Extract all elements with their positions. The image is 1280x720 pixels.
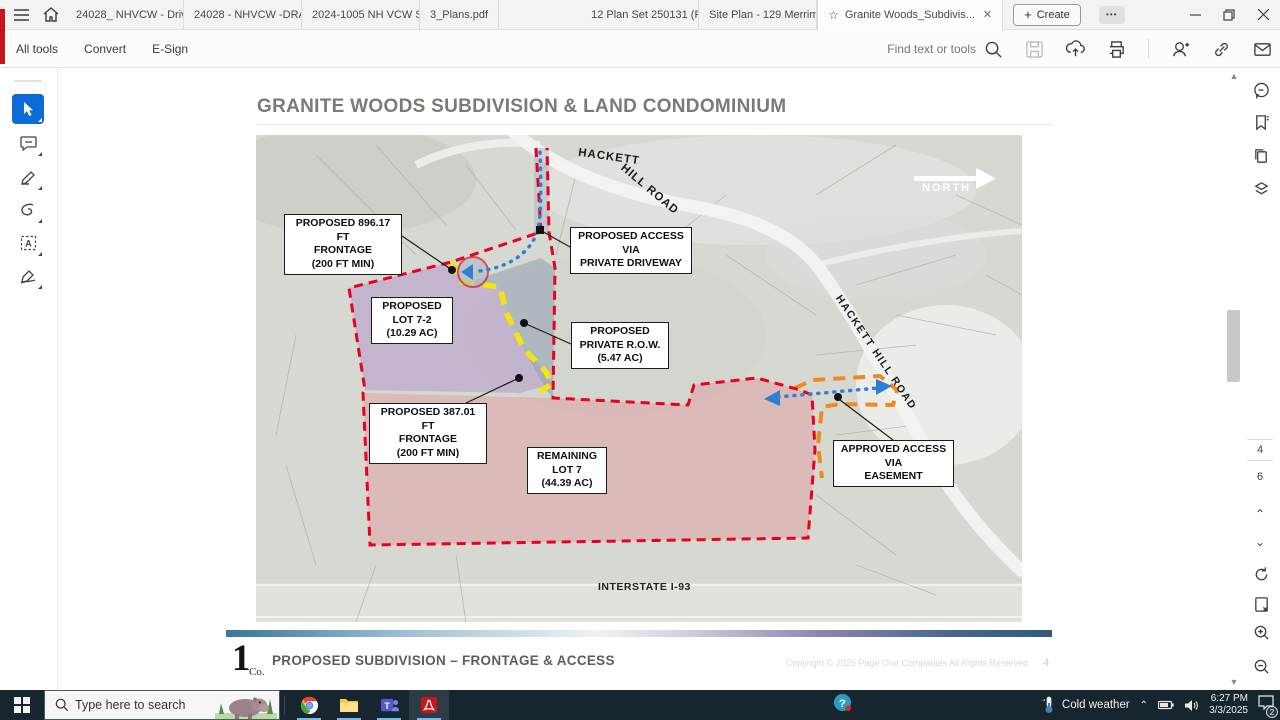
acrobat-brand-strip xyxy=(0,9,5,64)
current-page-field[interactable]: 4 xyxy=(1247,439,1273,461)
logo-number: 1 xyxy=(232,640,251,677)
callout-private-row: PROPOSED PRIVATE R.O.W. (5.47 AC) xyxy=(571,322,669,369)
windows-logo-icon xyxy=(14,697,30,713)
interstate-label: INTERSTATE I-93 xyxy=(598,581,691,593)
main-toolbar: All tools Convert E-Sign xyxy=(0,30,1280,68)
document-scrollbar: ▲ ▼ xyxy=(1225,68,1243,690)
tab-label: 3_Plans.pdf xyxy=(430,9,488,21)
create-button-label: Create xyxy=(1037,9,1070,21)
acrobat-window: 24028_ NHVCW - Driv... 24028 - NHVCW -DR… xyxy=(0,0,1280,720)
menu-all-tools[interactable]: All tools xyxy=(16,42,58,56)
callout-frontage-387: PROPOSED 387.01 FT FRONTAGE (200 FT MIN) xyxy=(369,403,487,464)
chrome-taskbar-icon[interactable] xyxy=(289,690,329,720)
total-pages-label: 6 xyxy=(1247,471,1273,483)
action-center-icon[interactable]: 2 xyxy=(1258,695,1274,715)
home-icon[interactable] xyxy=(36,0,66,30)
print-icon[interactable] xyxy=(1107,40,1126,59)
weather-label: Cold weather xyxy=(1062,699,1130,711)
callout-proposed-access: PROPOSED ACCESS VIA PRIVATE DRIVEWAY xyxy=(570,227,692,274)
logo-suffix: Co. xyxy=(249,666,265,678)
star-icon[interactable]: ☆ xyxy=(828,8,839,22)
windows-taskbar: T ? Cold weather ⌃ 6:27 PM 3/3/2025 xyxy=(0,690,1280,720)
hamburger-menu-icon[interactable] xyxy=(6,0,36,30)
tab-close-icon[interactable]: ✕ xyxy=(983,8,992,21)
site-plan-drawing xyxy=(256,135,1022,622)
notification-badge: 2 xyxy=(1266,706,1278,718)
tab-file-4[interactable]: 3_Plans.pdf xyxy=(420,0,499,30)
system-tray: ? Cold weather ⌃ 6:27 PM 3/3/2025 2 xyxy=(833,690,1280,720)
scroll-down-icon[interactable]: ▼ xyxy=(1228,676,1240,688)
draw-tool-button[interactable] xyxy=(12,195,44,225)
menu-convert[interactable]: Convert xyxy=(84,42,126,56)
battery-icon[interactable] xyxy=(1158,699,1174,711)
tab-label: Site Plan - 129 Merrima... xyxy=(709,9,817,21)
menu-esign[interactable]: E-Sign xyxy=(152,42,188,56)
callout-remaining-lot-7: REMAINING LOT 7 (44.39 AC) xyxy=(527,447,607,494)
taskbar-separator xyxy=(284,696,285,714)
clock[interactable]: 6:27 PM 3/3/2025 xyxy=(1209,693,1248,718)
comments-panel-icon[interactable] xyxy=(1249,78,1273,102)
tray-expand-icon[interactable]: ⌃ xyxy=(1140,700,1148,711)
mail-icon[interactable] xyxy=(1253,40,1272,59)
zoom-in-icon[interactable] xyxy=(1249,620,1273,644)
hippo-search-art xyxy=(215,691,277,719)
previous-page-icon[interactable]: ⌃ xyxy=(1249,504,1271,524)
teams-taskbar-icon[interactable]: T xyxy=(369,690,409,720)
taskbar-search-input[interactable] xyxy=(75,698,215,712)
thermometer-icon xyxy=(1042,696,1056,714)
file-explorer-taskbar-icon[interactable] xyxy=(329,690,369,720)
title-rule xyxy=(257,124,1052,125)
link-icon[interactable] xyxy=(1212,40,1231,59)
find-text-box[interactable] xyxy=(871,40,1003,59)
slide-title: GRANITE WOODS SUBDIVISION & LAND CONDOMI… xyxy=(257,96,786,118)
slide-copyright: Copyright © 2025 Page One Companies All … xyxy=(588,658,1028,668)
tab-label: 2024-1005 NH VCW Sit... xyxy=(312,9,420,21)
bookmarks-panel-icon[interactable] xyxy=(1249,110,1273,134)
callout-approved-access: APPROVED ACCESS VIA EASEMENT xyxy=(833,440,954,487)
slide-footer-heading: PROPOSED SUBDIVISION – FRONTAGE & ACCESS xyxy=(272,653,615,668)
create-button[interactable]: + Create xyxy=(1013,4,1081,26)
toolbar-divider xyxy=(1148,39,1149,59)
fit-page-icon[interactable] xyxy=(1249,592,1273,616)
taskbar-search[interactable] xyxy=(44,690,280,720)
tab-file-5[interactable]: 12 Plan Set 250131 (Red... xyxy=(581,0,699,30)
svg-text:A: A xyxy=(25,239,32,249)
help-tray-icon[interactable]: ? xyxy=(833,693,852,717)
zoom-out-icon[interactable] xyxy=(1249,654,1273,678)
tab-file-1[interactable]: 24028_ NHVCW - Driv... xyxy=(66,0,184,30)
north-label: NORTH xyxy=(922,182,971,194)
save-icon[interactable] xyxy=(1025,40,1044,59)
tab-file-6[interactable]: Site Plan - 129 Merrima... xyxy=(699,0,817,30)
callout-lot-7-2: PROPOSED LOT 7-2 (10.29 AC) xyxy=(371,297,453,344)
speaker-icon[interactable] xyxy=(1184,699,1199,712)
select-tool-button[interactable] xyxy=(12,94,44,124)
rail-divider xyxy=(14,80,42,82)
find-input[interactable] xyxy=(871,42,976,56)
fill-sign-tool-button[interactable] xyxy=(12,261,44,291)
callout-frontage-896: PROPOSED 896.17 FT FRONTAGE (200 FT MIN) xyxy=(284,214,402,275)
add-user-icon[interactable] xyxy=(1171,40,1190,59)
pages-panel-icon[interactable] xyxy=(1249,144,1273,168)
tab-granite-woods-active[interactable]: ☆ Granite Woods_Subdivis... ✕ xyxy=(817,0,1003,30)
minimize-button[interactable] xyxy=(1178,0,1212,30)
left-tool-rail: A xyxy=(0,68,58,690)
highlight-pencil-tool-button[interactable] xyxy=(12,162,44,192)
title-bar: 24028_ NHVCW - Driv... 24028 - NHVCW -DR… xyxy=(0,0,1280,30)
svg-text:T: T xyxy=(384,700,390,710)
tab-label: 12 Plan Set 250131 (Red... xyxy=(591,9,699,21)
comment-tool-button[interactable] xyxy=(12,128,44,158)
weather-widget[interactable]: Cold weather xyxy=(1042,696,1130,714)
tab-file-3[interactable]: 2024-1005 NH VCW Sit... xyxy=(302,0,420,30)
start-button[interactable] xyxy=(0,690,44,720)
rotate-page-icon[interactable] xyxy=(1249,562,1273,586)
svg-text:?: ? xyxy=(839,698,846,710)
restore-button[interactable] xyxy=(1212,0,1246,30)
right-panel-rail: ▲ ▼ 4 6 ⌃ ⌄ xyxy=(1225,68,1280,690)
plus-icon: + xyxy=(1024,7,1032,22)
slide-page-number: 4 xyxy=(1043,657,1049,669)
add-text-tool-button[interactable]: A xyxy=(12,228,44,258)
company-logo: 1 Co. xyxy=(232,640,272,682)
layers-panel-icon[interactable] xyxy=(1249,176,1273,200)
slide-accent-bar xyxy=(226,630,1052,637)
tab-file-2[interactable]: 24028 - NHVCW -DRA... xyxy=(184,0,302,30)
site-plan-map: HACKETT HILL ROAD HACKETT HILL ROAD NORT… xyxy=(256,135,1022,622)
document-viewport: GRANITE WOODS SUBDIVISION & LAND CONDOMI… xyxy=(58,68,1225,690)
more-options-icon[interactable]: ••• xyxy=(1099,6,1125,24)
scrollbar-thumb[interactable] xyxy=(1227,310,1240,382)
upload-cloud-icon[interactable] xyxy=(1066,40,1085,59)
clock-time: 6:27 PM xyxy=(1209,693,1248,706)
search-icon xyxy=(984,40,1003,59)
clock-date: 3/3/2025 xyxy=(1209,705,1248,718)
acrobat-taskbar-icon[interactable] xyxy=(409,690,449,720)
tab-label: Granite Woods_Subdivis... xyxy=(845,9,975,21)
close-button[interactable] xyxy=(1246,0,1280,30)
tab-label: 24028_ NHVCW - Driv... xyxy=(76,9,184,21)
scroll-up-icon[interactable]: ▲ xyxy=(1228,70,1240,82)
tab-label: 24028 - NHVCW -DRA... xyxy=(194,9,302,21)
next-page-icon[interactable]: ⌄ xyxy=(1249,532,1271,552)
